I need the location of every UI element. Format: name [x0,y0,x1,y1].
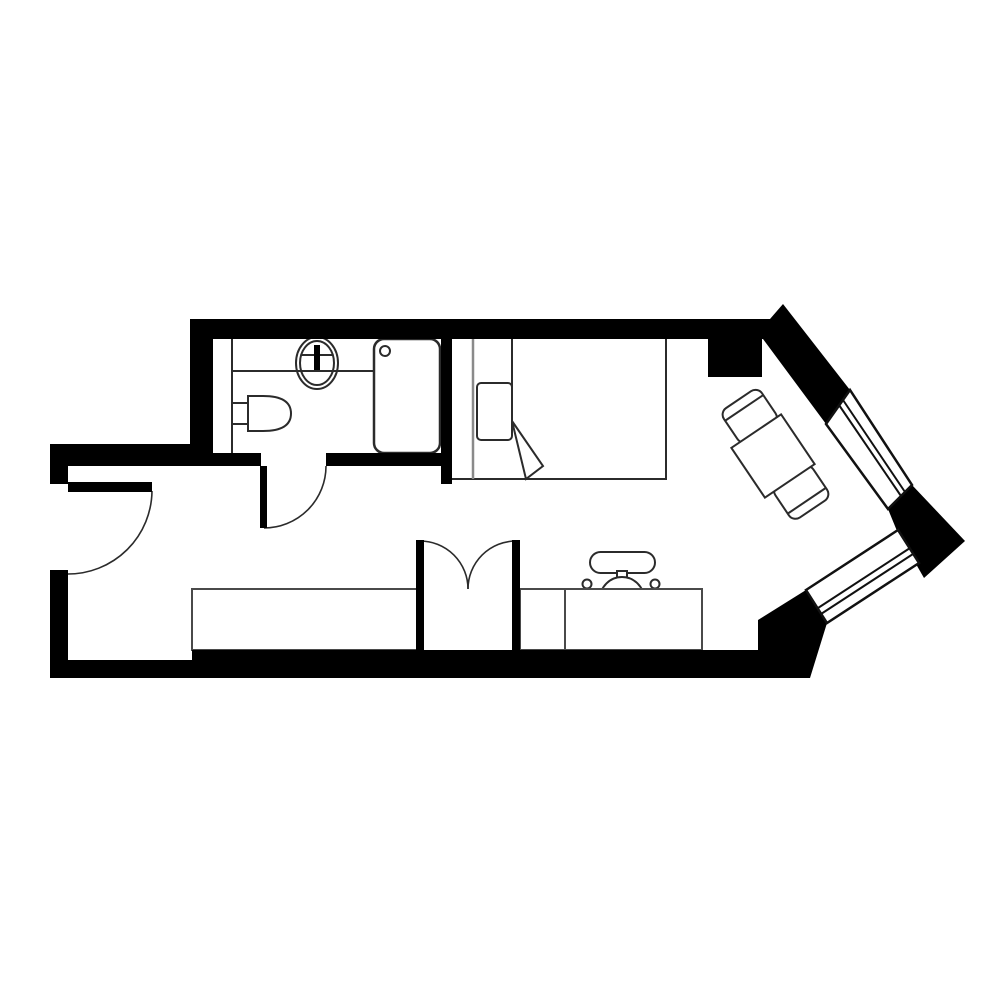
bottom-wall-and-lower-bay-wall [50,590,827,678]
desk [520,589,702,650]
floor-plan-page [0,0,1000,1000]
bathroom-door-swing-arc [264,466,326,528]
counter-cabinet [192,589,417,650]
bed-pillow [477,383,512,440]
office-chair-armrest-left [583,580,592,589]
office-chair-backrest [590,552,655,573]
closet-door-swing-arc-right [468,541,516,589]
entry-top-wall [50,444,213,484]
shower-partition-wall [441,335,452,484]
bathroom-left-wall [190,319,213,455]
floor-plan-svg [0,0,1000,1000]
bay-window-lower [806,530,919,623]
sink-faucet [314,345,320,370]
office-chair-armrest-right [651,580,660,589]
furniture-layer [192,337,831,650]
closet-post-right [512,540,520,652]
entry-door-leaf [68,482,152,492]
toilet-tank [232,403,248,424]
bathroom-door-leaf [260,466,267,528]
closet-post-left [416,540,424,652]
entry-door-swing-arc [68,491,152,574]
toilet-bowl [248,396,291,431]
structural-column [708,337,762,377]
bathroom-bottom-wall-left [213,453,261,466]
closet-door-swing-arc-left [420,541,468,589]
bathroom-bottom-wall-right [326,453,452,466]
